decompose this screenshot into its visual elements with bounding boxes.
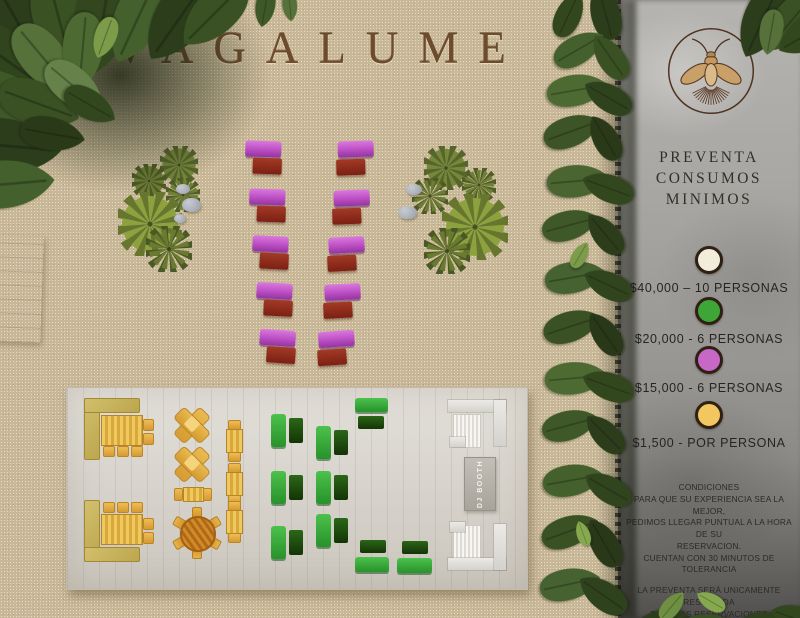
table-set-magenta [330, 189, 371, 225]
table-set-magenta [325, 236, 367, 273]
dj-booth: DJ BOOTH [464, 457, 496, 511]
vagalume-venue-map: VAGALUME [0, 0, 800, 618]
rock [406, 184, 422, 195]
legend-heading: PREVENTA CONSUMOS MINIMOS [618, 148, 800, 211]
heading-line: MINIMOS [618, 190, 800, 211]
gold-dining-set [84, 398, 154, 460]
conditions-title: CONDICIONES [622, 482, 796, 494]
conditions-line: RESERVACION. [622, 541, 796, 553]
legend-item-15000: $15,000 - 6 PERSONAS [618, 346, 800, 395]
two-seat-table [226, 420, 242, 460]
two-seat-table [226, 501, 242, 541]
heading-line: PREVENTA [618, 148, 800, 169]
table-set-magenta [315, 330, 357, 368]
legend-label: $40,000 – 10 PERSONAS [618, 281, 800, 295]
legend-label: $20,000 - 6 PERSONAS [618, 332, 800, 346]
palm-icon [424, 228, 470, 274]
legend-item-1500: $1,500 - POR PERSONA [618, 401, 800, 450]
tier-dot-white [695, 246, 723, 274]
heading-line: CONSUMOS [618, 169, 800, 190]
leaf-icon [279, 0, 302, 23]
table-set-magenta [255, 282, 297, 319]
dj-booth-label: DJ BOOTH [477, 460, 484, 508]
table-set-magenta [251, 235, 293, 272]
conditions-line: PARA QUE SU EXPERIENCIA SEA LA MEJOR, [622, 494, 796, 518]
two-seat-table [174, 486, 210, 502]
leaf-icon [0, 147, 59, 220]
tier-dot-green [695, 297, 723, 325]
vip-lounge-set [448, 400, 506, 448]
legend-item-20000: $20,000 - 6 PERSONAS [618, 297, 800, 346]
legend-label: $15,000 - 6 PERSONAS [618, 381, 800, 395]
tier-dot-magenta [695, 346, 723, 374]
tier-dot-yellow [695, 401, 723, 429]
rock [398, 206, 417, 219]
gold-dining-set [84, 500, 154, 562]
legend-item-40000: $40,000 – 10 PERSONAS [618, 246, 800, 295]
legend-label: $1,500 - POR PERSONA [618, 436, 800, 450]
round-table-set [172, 508, 220, 556]
conditions-line: CUENTAN CON 30 MINUTOS DE TOLERANCIA [622, 553, 796, 577]
table-set-magenta [258, 329, 300, 367]
two-seat-table [226, 463, 242, 503]
conditions-line: PEDIMOS LLEGAR PUNTUAL A LA HORA DE SU [622, 517, 796, 541]
table-set-magenta [334, 140, 375, 176]
vip-lounge-set [448, 522, 506, 570]
table-set-magenta [321, 283, 363, 320]
walkway [0, 235, 44, 343]
